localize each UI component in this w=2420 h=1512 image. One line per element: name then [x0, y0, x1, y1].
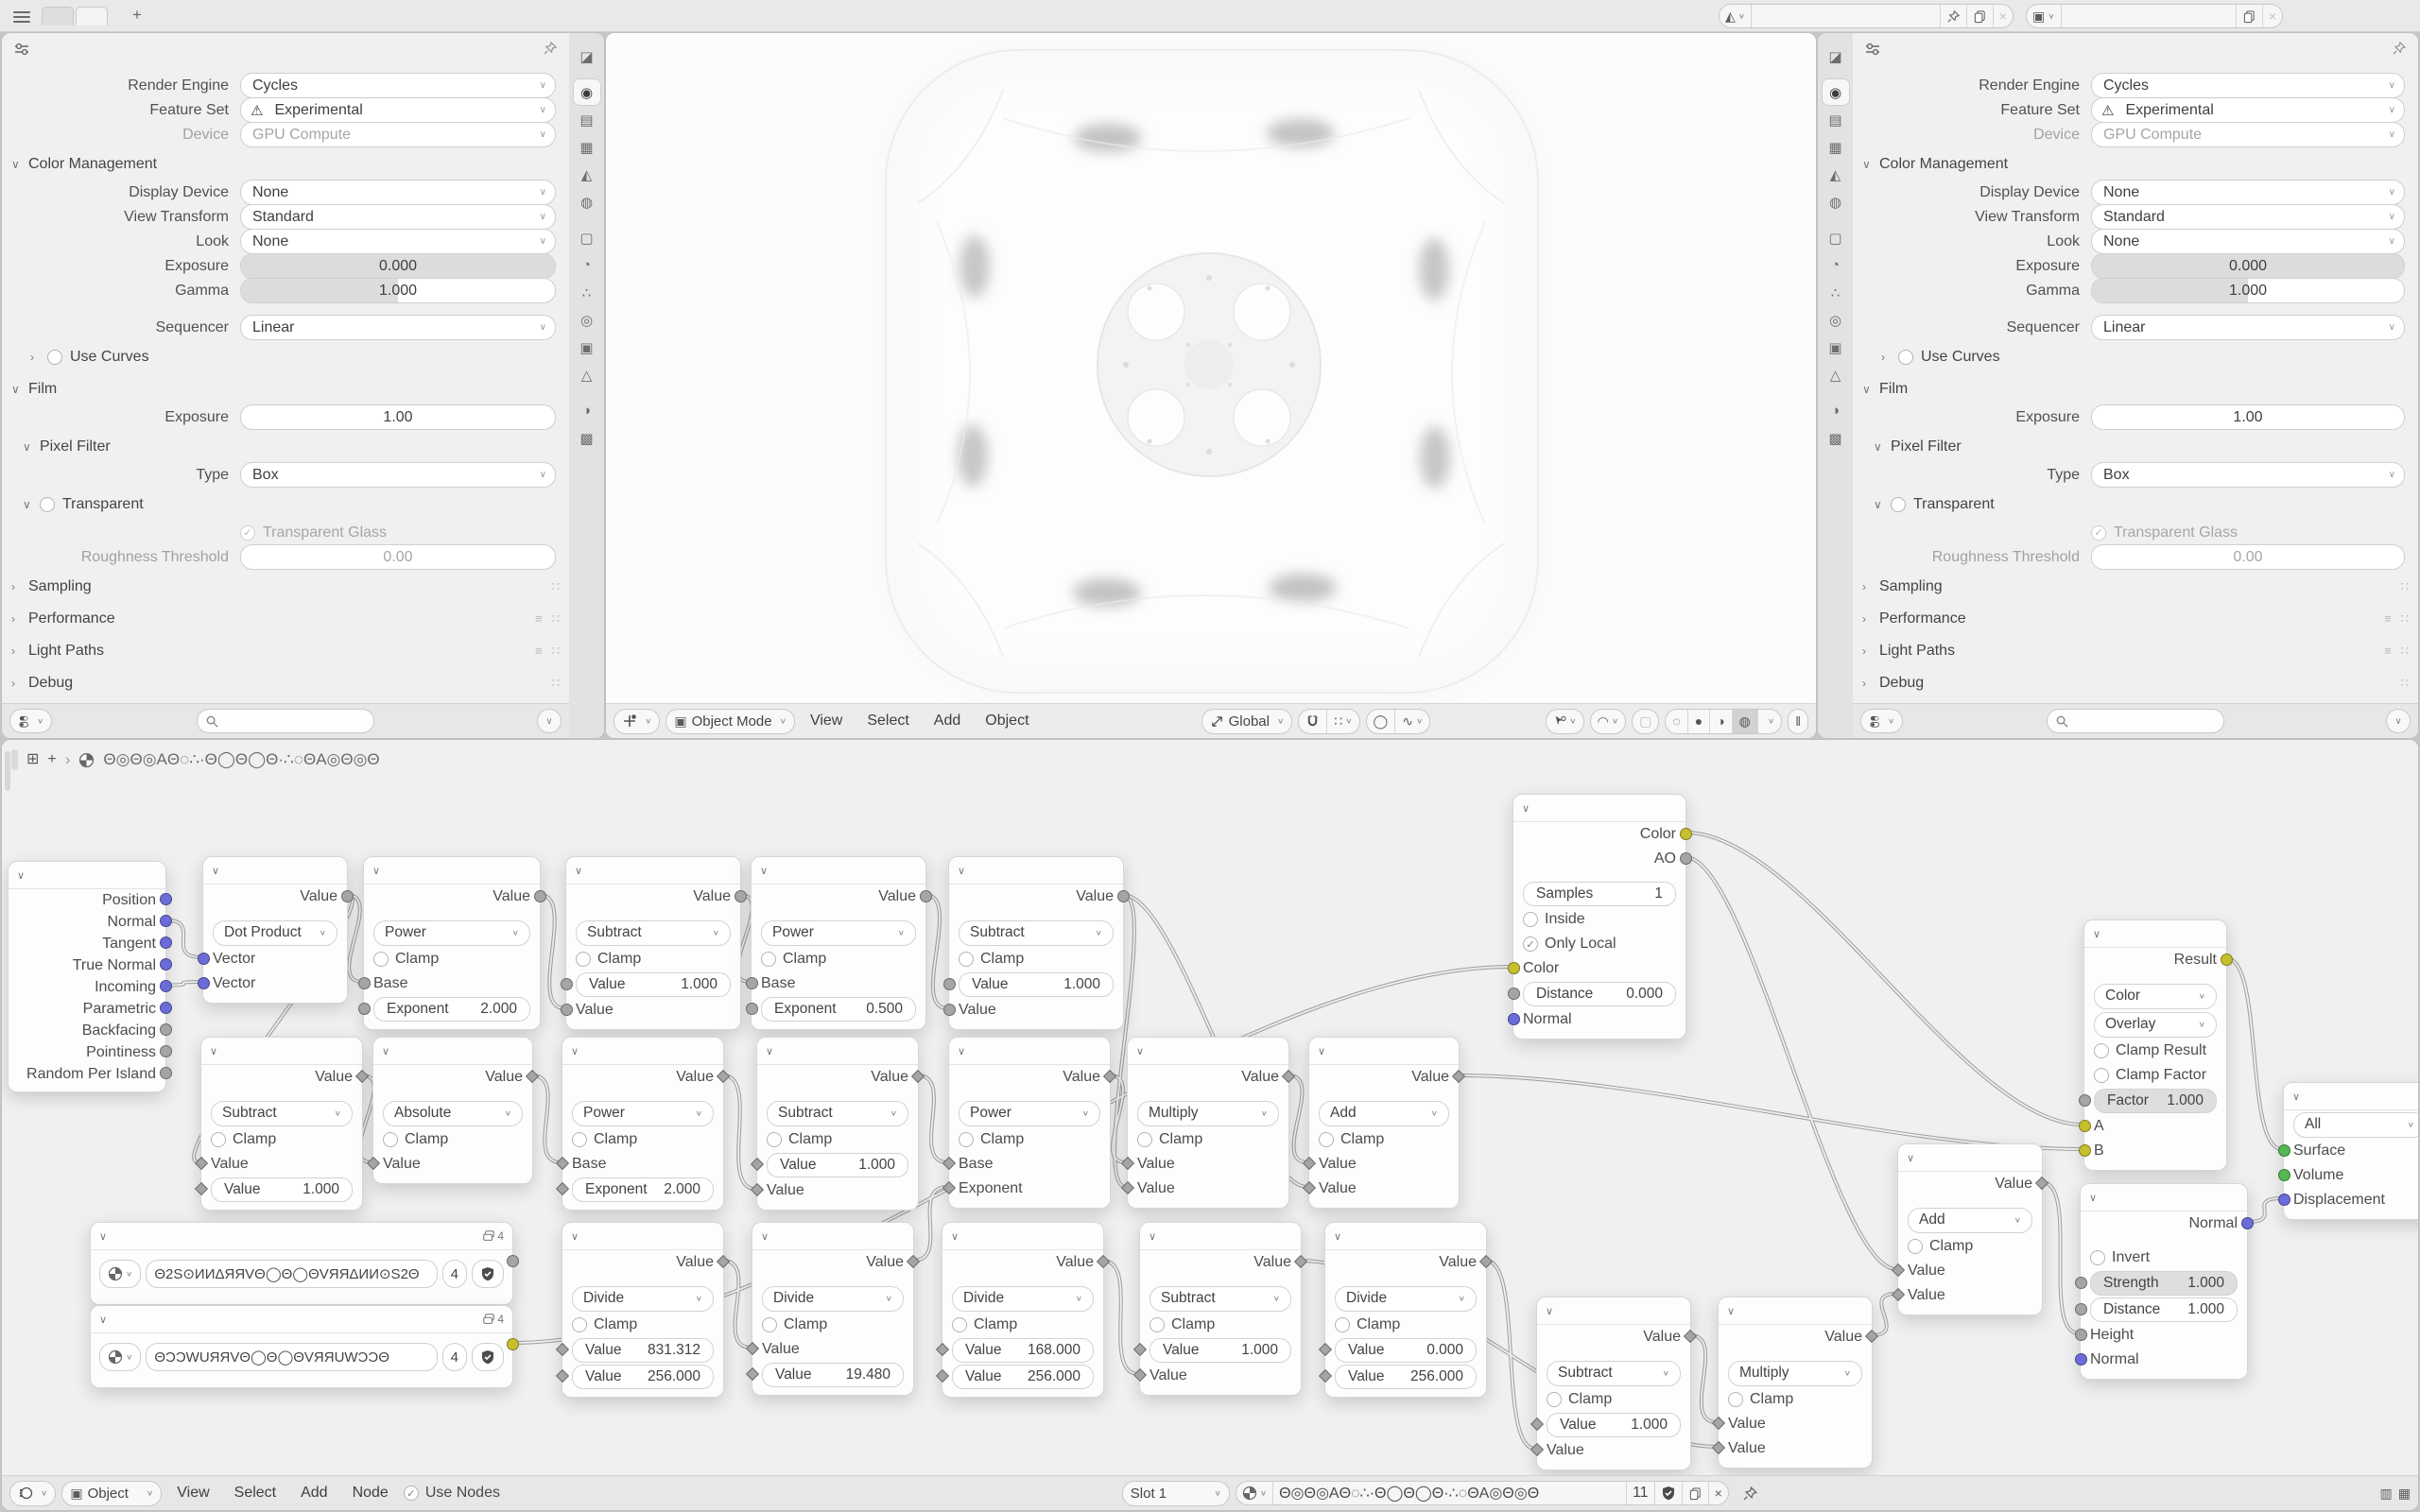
output-socket-gray[interactable] [160, 1045, 172, 1057]
properties-tab-object-data[interactable]: △ [574, 362, 600, 387]
properties-tab-constraints[interactable]: ▣ [1823, 335, 1849, 360]
node-div3[interactable]: ∨ValueDivide∨ClampValue168.000Value256.0… [942, 1222, 1104, 1398]
checkbox[interactable] [40, 497, 55, 512]
node-pow1[interactable]: ∨ValuePower∨ClampBaseExponent2.000 [363, 856, 541, 1030]
field-device[interactable]: GPU Compute∨ [240, 122, 556, 147]
field-look[interactable]: None∨ [2091, 229, 2405, 254]
field-device[interactable]: GPU Compute∨ [2091, 122, 2405, 147]
node-mul1[interactable]: ∨ValueMultiply∨ClampValueValue [1127, 1037, 1289, 1209]
input-socket-vector[interactable] [1508, 1013, 1520, 1025]
checkbox-clamp[interactable] [1908, 1239, 1923, 1254]
checkbox-only-local[interactable] [1523, 936, 1538, 952]
section-film[interactable]: ∨Film [1862, 375, 2409, 404]
collapse-chevron-icon[interactable]: ∨ [766, 1045, 773, 1057]
node-header[interactable]: ∨ [757, 1038, 918, 1065]
menu-view[interactable]: View [801, 713, 852, 730]
copy-icon[interactable] [1967, 5, 1994, 27]
field-exposure[interactable]: 0.000 [240, 253, 556, 279]
field-gamma[interactable]: 1.000 [2091, 278, 2405, 303]
value-field[interactable]: Value1.000 [211, 1177, 353, 1202]
input-socket-gray[interactable] [746, 1003, 758, 1015]
shading-solid[interactable]: ● [1688, 710, 1710, 733]
node-dropdown[interactable]: Power∨ [959, 1101, 1100, 1126]
properties-tab-world[interactable]: ◍ [1823, 189, 1849, 215]
node-dropdown[interactable]: Power∨ [373, 920, 530, 946]
datablock-name[interactable]: ΘƆƆWUЯЯVΘ◯Θ◯ΘVЯЯUWƆƆΘ [146, 1343, 437, 1371]
pin-icon[interactable] [2392, 41, 2407, 56]
checkbox[interactable] [1891, 497, 1906, 512]
value-field[interactable]: Value256.000 [952, 1365, 1094, 1389]
checkbox-clamp[interactable] [767, 1132, 782, 1147]
checkbox-clamp[interactable] [1547, 1392, 1562, 1407]
value-field[interactable]: Value1.000 [576, 972, 731, 997]
datablock-users-count[interactable]: 4 [442, 1343, 467, 1371]
search-input[interactable] [2047, 709, 2224, 733]
field-type[interactable]: Box∨ [2091, 462, 2405, 488]
node-header[interactable]: ∨ [752, 857, 925, 885]
input-socket-green[interactable] [2278, 1169, 2290, 1181]
collapse-chevron-icon[interactable]: ∨ [1727, 1305, 1735, 1317]
properties-tab-scene[interactable]: ◭ [1823, 162, 1849, 187]
drag-dots-icon[interactable]: ∷ [2401, 676, 2409, 691]
subsection-transparent[interactable]: ∨Transparent [23, 490, 560, 519]
collapse-chevron-icon[interactable]: ∨ [1546, 1305, 1553, 1317]
list-icon[interactable]: ≡ [535, 644, 543, 659]
checkbox-clamp-factor[interactable] [2094, 1068, 2109, 1083]
menu-add[interactable]: Add [291, 1485, 337, 1502]
input-socket-gray[interactable] [561, 1004, 573, 1016]
node-img2[interactable]: ∨4∨ΘƆƆWUЯЯVΘ◯Θ◯ΘVЯЯUWƆƆΘ4 [90, 1305, 513, 1388]
collapse-chevron-icon[interactable]: ∨ [212, 865, 219, 877]
properties-tab-texture[interactable]: ▩ [1823, 425, 1849, 451]
value-field[interactable]: Samples1 [1523, 882, 1676, 906]
node-dropdown[interactable]: Multiply∨ [1137, 1101, 1279, 1126]
view-layer-name[interactable] [2062, 5, 2237, 27]
material-name[interactable]: Θ◎Θ◎AΘ◌∴·Θ◯Θ◯Θ·∴◌ΘA◎Θ◎Θ [1273, 1482, 1627, 1504]
node-header[interactable]: ∨ [1140, 1223, 1301, 1250]
drag-dots-icon[interactable]: ∷ [552, 644, 560, 659]
node-header[interactable]: ∨ [2084, 920, 2226, 948]
node-dropdown[interactable]: Divide∨ [1335, 1286, 1477, 1312]
checkbox-invert[interactable] [2090, 1250, 2105, 1265]
node-dropdown[interactable]: Add∨ [1908, 1208, 2032, 1233]
field-view-transform[interactable]: Standard∨ [240, 204, 556, 230]
scene-icon[interactable]: ◭∨ [1720, 5, 1752, 27]
node-canvas[interactable]: ⊞ + › Θ◎Θ◎AΘ◌∴·Θ◯Θ◯Θ·∴◌ΘA◎Θ◎Θ ∨PositionN… [2, 740, 2418, 1475]
node-div2[interactable]: ∨ValueDivide∨ClampValueValue19.480 [752, 1222, 914, 1396]
field-sequencer[interactable]: Linear∨ [240, 315, 556, 340]
snap-magnet-icon[interactable] [1299, 710, 1327, 733]
node-dropdown[interactable]: Power∨ [761, 920, 916, 946]
menu-add[interactable]: Add [925, 713, 970, 730]
field-sequencer[interactable]: Linear∨ [2091, 315, 2405, 340]
output-socket-gray[interactable] [735, 890, 747, 902]
input-socket-gray[interactable] [358, 1003, 371, 1015]
node-dropdown[interactable]: All∨ [2293, 1112, 2418, 1138]
field-render-engine[interactable]: Cycles∨ [240, 73, 556, 98]
section-light-paths[interactable]: ›Light Paths≡∷ [11, 637, 560, 665]
collapse-chevron-icon[interactable]: ∨ [99, 1230, 107, 1243]
checkbox-clamp[interactable] [1149, 1317, 1165, 1332]
node-header[interactable]: ∨ [1325, 1223, 1486, 1250]
datablock-users-count[interactable]: 4 [442, 1260, 467, 1288]
output-socket-vector[interactable] [2241, 1217, 2254, 1229]
value-field[interactable]: Value19.480 [762, 1363, 904, 1387]
checkbox-clamp[interactable] [572, 1132, 587, 1147]
app-menu-icon[interactable] [13, 9, 30, 22]
value-field[interactable]: Strength1.000 [2090, 1271, 2238, 1296]
checkbox-clamp-result[interactable] [2094, 1043, 2109, 1058]
checkbox-clamp[interactable] [1335, 1317, 1350, 1332]
input-socket-gray[interactable] [746, 977, 758, 989]
output-socket-yellow[interactable] [507, 1338, 519, 1350]
section-debug[interactable]: ›Debug∷ [11, 669, 560, 697]
section-color-management[interactable]: ∨Color Management [1862, 150, 2409, 179]
node-header[interactable]: ∨ [373, 1038, 532, 1065]
input-socket-yellow[interactable] [1508, 962, 1520, 974]
node-geo[interactable]: ∨PositionNormalTangentTrue NormalIncomin… [8, 861, 166, 1092]
scene-name[interactable] [1752, 5, 1941, 27]
sidebar-handle[interactable] [11, 749, 18, 770]
field-display-device[interactable]: None∨ [2091, 180, 2405, 205]
editor-type-button[interactable]: ∨ [614, 709, 660, 734]
field-exposure[interactable]: 1.00 [2091, 404, 2405, 430]
node-dropdown[interactable]: Subtract∨ [1547, 1361, 1681, 1386]
node-dropdown[interactable]: Dot Product∨ [213, 920, 337, 946]
view-layer-icon[interactable]: ▣∨ [2027, 5, 2062, 27]
collapse-chevron-icon[interactable]: ∨ [2292, 1091, 2300, 1103]
checkbox-clamp[interactable] [211, 1132, 226, 1147]
output-socket-gray[interactable] [534, 890, 546, 902]
falloff-icon[interactable]: ∿∨ [1395, 710, 1429, 733]
output-socket-vector[interactable] [160, 958, 172, 971]
use-nodes-checkbox[interactable]: Use Nodes [404, 1485, 500, 1502]
checkbox[interactable] [47, 350, 62, 365]
node-header[interactable]: ∨4 [91, 1306, 512, 1333]
viewport-render[interactable] [606, 33, 1816, 703]
value-field[interactable]: Value1.000 [959, 972, 1114, 997]
pause-render-button[interactable]: ‖ [1788, 709, 1808, 734]
collapse-chevron-icon[interactable]: ∨ [760, 865, 768, 877]
node-dropdown[interactable]: Subtract∨ [211, 1101, 353, 1126]
checkbox-clamp[interactable] [1137, 1132, 1152, 1147]
value-field[interactable]: Value256.000 [1335, 1365, 1477, 1389]
fake-user-shield-icon[interactable] [472, 1260, 504, 1288]
field-display-device[interactable]: None∨ [240, 180, 556, 205]
field-feature-set[interactable]: ⚠Experimental∨ [2091, 97, 2405, 123]
field-roughness-threshold[interactable]: 0.00 [2091, 544, 2405, 570]
input-socket-vector[interactable] [198, 953, 210, 965]
node-dropdown[interactable]: Add∨ [1319, 1101, 1449, 1126]
collapse-chevron-icon[interactable]: ∨ [571, 1230, 579, 1243]
input-socket-gray[interactable] [943, 978, 956, 990]
properties-tab-constraints[interactable]: ▣ [574, 335, 600, 360]
input-socket-yellow[interactable] [2079, 1120, 2091, 1132]
input-socket-gray[interactable] [358, 977, 371, 989]
node-header[interactable]: ∨ [1309, 1038, 1459, 1065]
menu-node[interactable]: Node [343, 1485, 398, 1502]
options-chevron-button[interactable]: ∨ [537, 709, 562, 733]
collapse-chevron-icon[interactable]: ∨ [1149, 1230, 1156, 1243]
input-socket-vector[interactable] [198, 977, 210, 989]
properties-tab-view-layer[interactable]: ▦ [1823, 134, 1849, 160]
properties-tab-physics[interactable]: ◎ [1823, 307, 1849, 333]
collapse-chevron-icon[interactable]: ∨ [958, 1045, 965, 1057]
node-header[interactable]: ∨ [1513, 795, 1685, 822]
menu-select[interactable]: Select [857, 713, 918, 730]
node-dropdown[interactable]: Overlay∨ [2094, 1012, 2217, 1038]
copy-icon[interactable] [2237, 5, 2263, 27]
node-header[interactable]: ∨ [2081, 1184, 2247, 1211]
drag-dots-icon[interactable]: ∷ [2401, 579, 2409, 594]
node-dropdown[interactable]: Divide∨ [762, 1286, 904, 1312]
node-header[interactable]: ∨ [949, 857, 1123, 885]
properties-tab-modifiers[interactable]: ◔ [574, 252, 600, 278]
drag-dots-icon[interactable]: ∷ [2401, 611, 2409, 627]
node-header[interactable]: ∨ [203, 857, 347, 885]
fake-user-shield-icon[interactable] [1655, 1482, 1683, 1504]
node-mix[interactable]: ∨ResultColor∨Overlay∨Clamp ResultClamp F… [2083, 919, 2227, 1171]
node-header[interactable]: ∨ [942, 1223, 1103, 1250]
value-field[interactable]: Value1.000 [767, 1153, 908, 1177]
collapse-chevron-icon[interactable]: ∨ [1318, 1045, 1325, 1057]
properties-tab-material[interactable]: ◑ [574, 398, 600, 423]
value-field[interactable]: Value1.000 [1547, 1413, 1681, 1437]
collapse-chevron-icon[interactable]: ∨ [958, 865, 965, 877]
properties-tab-world[interactable]: ◍ [574, 189, 600, 215]
field-render-engine[interactable]: Cycles∨ [2091, 73, 2405, 98]
collapse-chevron-icon[interactable]: ∨ [17, 869, 25, 882]
field-view-transform[interactable]: Standard∨ [2091, 204, 2405, 230]
proportional-edit-controls[interactable]: ◯ ∿∨ [1366, 709, 1431, 734]
filter-type-button[interactable]: ∨ [9, 709, 52, 733]
menu-object[interactable]: Object [976, 713, 1038, 730]
node-dropdown[interactable]: Subtract∨ [959, 920, 1114, 946]
value-field[interactable]: Value256.000 [572, 1365, 714, 1389]
output-socket-gray[interactable] [341, 890, 354, 902]
slot-dropdown[interactable]: Slot 1∨ [1122, 1481, 1230, 1506]
properties-tab-scene[interactable]: ◭ [574, 162, 600, 187]
field-type[interactable]: Box∨ [240, 462, 556, 488]
list-icon[interactable]: ≡ [2384, 611, 2392, 627]
proportional-edit-icon[interactable]: ◯ [1367, 710, 1396, 733]
snap-target-icon[interactable]: ∷∨ [1327, 710, 1358, 733]
subsection-transparent[interactable]: ∨Transparent [1874, 490, 2409, 519]
workspace-tab-1[interactable] [42, 7, 74, 26]
subsection-use-curves[interactable]: ›Use Curves [1881, 343, 2409, 371]
node-add1[interactable]: ∨ValueAdd∨ClampValueValue [1308, 1037, 1460, 1209]
gizmo-toggle[interactable]: ∨ [1546, 709, 1583, 734]
node-header[interactable]: ∨ [752, 1223, 913, 1250]
properties-editor-icon[interactable] [13, 41, 30, 58]
properties-tab-object-data[interactable]: △ [1823, 362, 1849, 387]
checkbox-clamp[interactable] [572, 1317, 587, 1332]
output-socket-gray[interactable] [920, 890, 932, 902]
value-field[interactable]: Distance1.000 [2090, 1297, 2238, 1322]
input-socket-gray[interactable] [2075, 1303, 2087, 1315]
subsection-use-curves[interactable]: ›Use Curves [30, 343, 560, 371]
shading-material-preview[interactable]: ◑ [1710, 710, 1732, 733]
value-field[interactable]: Factor1.000 [2094, 1089, 2217, 1113]
collapse-chevron-icon[interactable]: ∨ [1522, 802, 1530, 815]
checkbox-clamp[interactable] [762, 1317, 777, 1332]
shading-dropdown[interactable]: ∨ [1758, 710, 1781, 733]
mode-dropdown[interactable]: ▣Object Mode∨ [665, 709, 795, 734]
node-out[interactable]: ∨All∨SurfaceVolumeDisplacement [2283, 1082, 2418, 1220]
overlay-icon[interactable]: ▥ [2380, 1486, 2393, 1500]
input-socket-gray[interactable] [1508, 988, 1520, 1000]
output-socket-gray[interactable] [1680, 852, 1692, 865]
collapse-chevron-icon[interactable]: ∨ [1334, 1230, 1341, 1243]
editor-type-button[interactable]: ∨ [9, 1481, 56, 1506]
node-bump[interactable]: ∨NormalInvertStrength1.000Distance1.000H… [2080, 1183, 2248, 1380]
browse-material-icon[interactable]: ∨ [1236, 1482, 1273, 1504]
shader-type-dropdown[interactable]: ▣Object∨ [61, 1481, 162, 1506]
node-header[interactable]: ∨ [949, 1038, 1110, 1065]
input-socket-gray[interactable] [561, 978, 573, 990]
properties-tab-physics[interactable]: ◎ [574, 307, 600, 333]
input-socket-vector[interactable] [2075, 1353, 2087, 1366]
node-img1[interactable]: ∨4∨Θ2S⊙ИИΔЯЯVΘ◯Θ◯ΘVЯЯΔИИ⊙S2Θ4 [90, 1222, 513, 1305]
node-header[interactable]: ∨ [1898, 1144, 2042, 1172]
input-socket-gray[interactable] [943, 1004, 956, 1016]
shading-wireframe[interactable]: ◌ [1666, 710, 1687, 733]
node-pow2[interactable]: ∨ValuePower∨ClampBaseExponent0.500 [751, 856, 926, 1030]
value-field[interactable]: Distance0.000 [1523, 982, 1676, 1006]
drag-dots-icon[interactable]: ∷ [552, 579, 560, 594]
properties-editor-icon[interactable] [1864, 41, 1881, 58]
node-div4[interactable]: ∨ValueDivide∨ClampValue0.000Value256.000 [1324, 1222, 1487, 1398]
node-sub3[interactable]: ∨ValueSubtract∨ClampValueValue1.000 [200, 1037, 363, 1211]
search-input[interactable] [197, 709, 374, 733]
properties-tab-output[interactable]: ▤ [1823, 107, 1849, 132]
field-exposure[interactable]: 1.00 [240, 404, 556, 430]
parent-icon[interactable]: ⊞ [26, 752, 39, 767]
overlays-toggle[interactable]: ◠∨ [1590, 709, 1627, 734]
add-workspace-button[interactable]: + [132, 6, 142, 25]
field-roughness-threshold[interactable]: 0.00 [240, 544, 556, 570]
pin-icon[interactable] [1941, 5, 1967, 27]
transform-orientation-dropdown[interactable]: Global∨ [1201, 709, 1293, 734]
node-header[interactable]: ∨ [201, 1038, 362, 1065]
output-socket-yellow[interactable] [1680, 828, 1692, 840]
collapse-chevron-icon[interactable]: ∨ [2093, 928, 2100, 940]
properties-tab-output[interactable]: ▤ [574, 107, 600, 132]
field-exposure[interactable]: 0.000 [2091, 253, 2405, 279]
node-mul2[interactable]: ∨ValueMultiply∨ClampValueValue [1718, 1297, 1873, 1469]
node-dropdown[interactable]: Subtract∨ [767, 1101, 908, 1126]
node-dropdown[interactable]: Absolute∨ [383, 1101, 523, 1126]
snap-controls[interactable]: ∷∨ [1298, 709, 1359, 734]
node-header[interactable]: ∨ [364, 857, 540, 885]
output-socket-vector[interactable] [160, 893, 172, 905]
section-debug[interactable]: ›Debug∷ [1862, 669, 2409, 697]
checkbox-clamp[interactable] [576, 952, 591, 967]
checkbox[interactable] [1898, 350, 1913, 365]
output-socket-vector[interactable] [160, 1002, 172, 1014]
browse-datablock-icon[interactable]: ∨ [99, 1260, 141, 1288]
node-header[interactable]: ∨ [562, 1038, 723, 1065]
node-pow4[interactable]: ∨ValuePower∨ClampBaseExponent [948, 1037, 1111, 1209]
output-socket-gray[interactable] [160, 1023, 172, 1036]
input-socket-vector[interactable] [2278, 1194, 2290, 1206]
checkbox-clamp[interactable] [373, 952, 389, 967]
pin-icon[interactable] [1742, 1486, 1758, 1502]
properties-tab-render[interactable]: ◉ [574, 79, 600, 105]
node-dropdown[interactable]: Divide∨ [952, 1286, 1094, 1312]
collapse-chevron-icon[interactable]: ∨ [2089, 1192, 2097, 1204]
output-socket-vector[interactable] [160, 980, 172, 992]
checkbox-clamp[interactable] [383, 1132, 398, 1147]
collapse-chevron-icon[interactable]: ∨ [575, 865, 582, 877]
node-header[interactable]: ∨ [562, 1223, 723, 1250]
node-sub6[interactable]: ∨ValueSubtract∨ClampValue1.000Value [1536, 1297, 1691, 1470]
collapse-chevron-icon[interactable]: ∨ [1907, 1152, 1914, 1164]
properties-tab-view-layer[interactable]: ▦ [574, 134, 600, 160]
options-chevron-button[interactable]: ∨ [2386, 709, 2411, 733]
input-socket-gray[interactable] [2079, 1094, 2091, 1107]
drag-dots-icon[interactable]: ∷ [2401, 644, 2409, 659]
node-header[interactable]: ∨ [9, 862, 165, 889]
output-socket-gray[interactable] [160, 1067, 172, 1079]
node-header[interactable]: ∨ [1719, 1297, 1872, 1325]
properties-tab-modifiers[interactable]: ◔ [1823, 252, 1849, 278]
checkbox-inside[interactable] [1523, 912, 1538, 927]
properties-tab-particles[interactable]: ∴ [1823, 280, 1849, 305]
node-abs[interactable]: ∨ValueAbsolute∨ClampValue [372, 1037, 533, 1184]
field-feature-set[interactable]: ⚠Experimental∨ [240, 97, 556, 123]
scene-selector[interactable]: ◭∨ × [1719, 4, 2014, 28]
node-header[interactable]: ∨ [2284, 1083, 2418, 1110]
section-film[interactable]: ∨Film [11, 375, 560, 404]
node-ao[interactable]: ∨ColorAOSamples1InsideOnly LocalColorDis… [1512, 794, 1686, 1039]
value-field[interactable]: Exponent2.000 [572, 1177, 714, 1202]
view-layer-selector[interactable]: ▣∨ × [2026, 4, 2283, 28]
list-icon[interactable]: ≡ [535, 611, 543, 627]
value-field[interactable]: Value168.000 [952, 1338, 1094, 1363]
snapping-icon[interactable]: ▦ [2398, 1486, 2411, 1500]
collapse-chevron-icon[interactable]: ∨ [99, 1314, 107, 1326]
node-header[interactable]: ∨ [1128, 1038, 1288, 1065]
collapse-chevron-icon[interactable]: ∨ [571, 1045, 579, 1057]
section-sampling[interactable]: ›Sampling∷ [11, 573, 560, 601]
shading-rendered[interactable]: ◍ [1733, 710, 1758, 733]
output-socket-gray[interactable] [1117, 890, 1130, 902]
node-dropdown[interactable]: Subtract∨ [576, 920, 731, 946]
node-dropdown[interactable]: Multiply∨ [1728, 1361, 1862, 1386]
browse-datablock-icon[interactable]: ∨ [99, 1343, 141, 1371]
list-icon[interactable]: ≡ [2384, 644, 2392, 659]
material-selector[interactable]: ∨ Θ◎Θ◎AΘ◌∴·Θ◯Θ◯Θ·∴◌ΘA◎Θ◎Θ 11 × [1236, 1481, 1729, 1505]
node-sub1[interactable]: ∨ValueSubtract∨ClampValue1.000Value [565, 856, 741, 1030]
unlink-material-icon[interactable]: × [1709, 1482, 1728, 1504]
value-field[interactable]: Value0.000 [1335, 1338, 1477, 1363]
menu-select[interactable]: Select [225, 1485, 285, 1502]
collapse-chevron-icon[interactable]: ∨ [382, 1045, 389, 1057]
menu-view[interactable]: View [167, 1485, 218, 1502]
value-field[interactable]: Exponent0.500 [761, 997, 916, 1022]
input-socket-yellow[interactable] [2079, 1144, 2091, 1157]
section-sampling[interactable]: ›Sampling∷ [1862, 573, 2409, 601]
properties-tab-texture[interactable]: ▩ [574, 425, 600, 451]
datablock-name[interactable]: Θ2S⊙ИИΔЯЯVΘ◯Θ◯ΘVЯЯΔИИ⊙S2Θ [146, 1260, 437, 1288]
output-socket-vector[interactable] [160, 936, 172, 949]
drag-dots-icon[interactable]: ∷ [552, 611, 560, 627]
move-icon[interactable]: + [47, 752, 56, 767]
pin-icon[interactable] [543, 41, 558, 56]
checkbox-clamp[interactable] [1728, 1392, 1743, 1407]
field-look[interactable]: None∨ [240, 229, 556, 254]
